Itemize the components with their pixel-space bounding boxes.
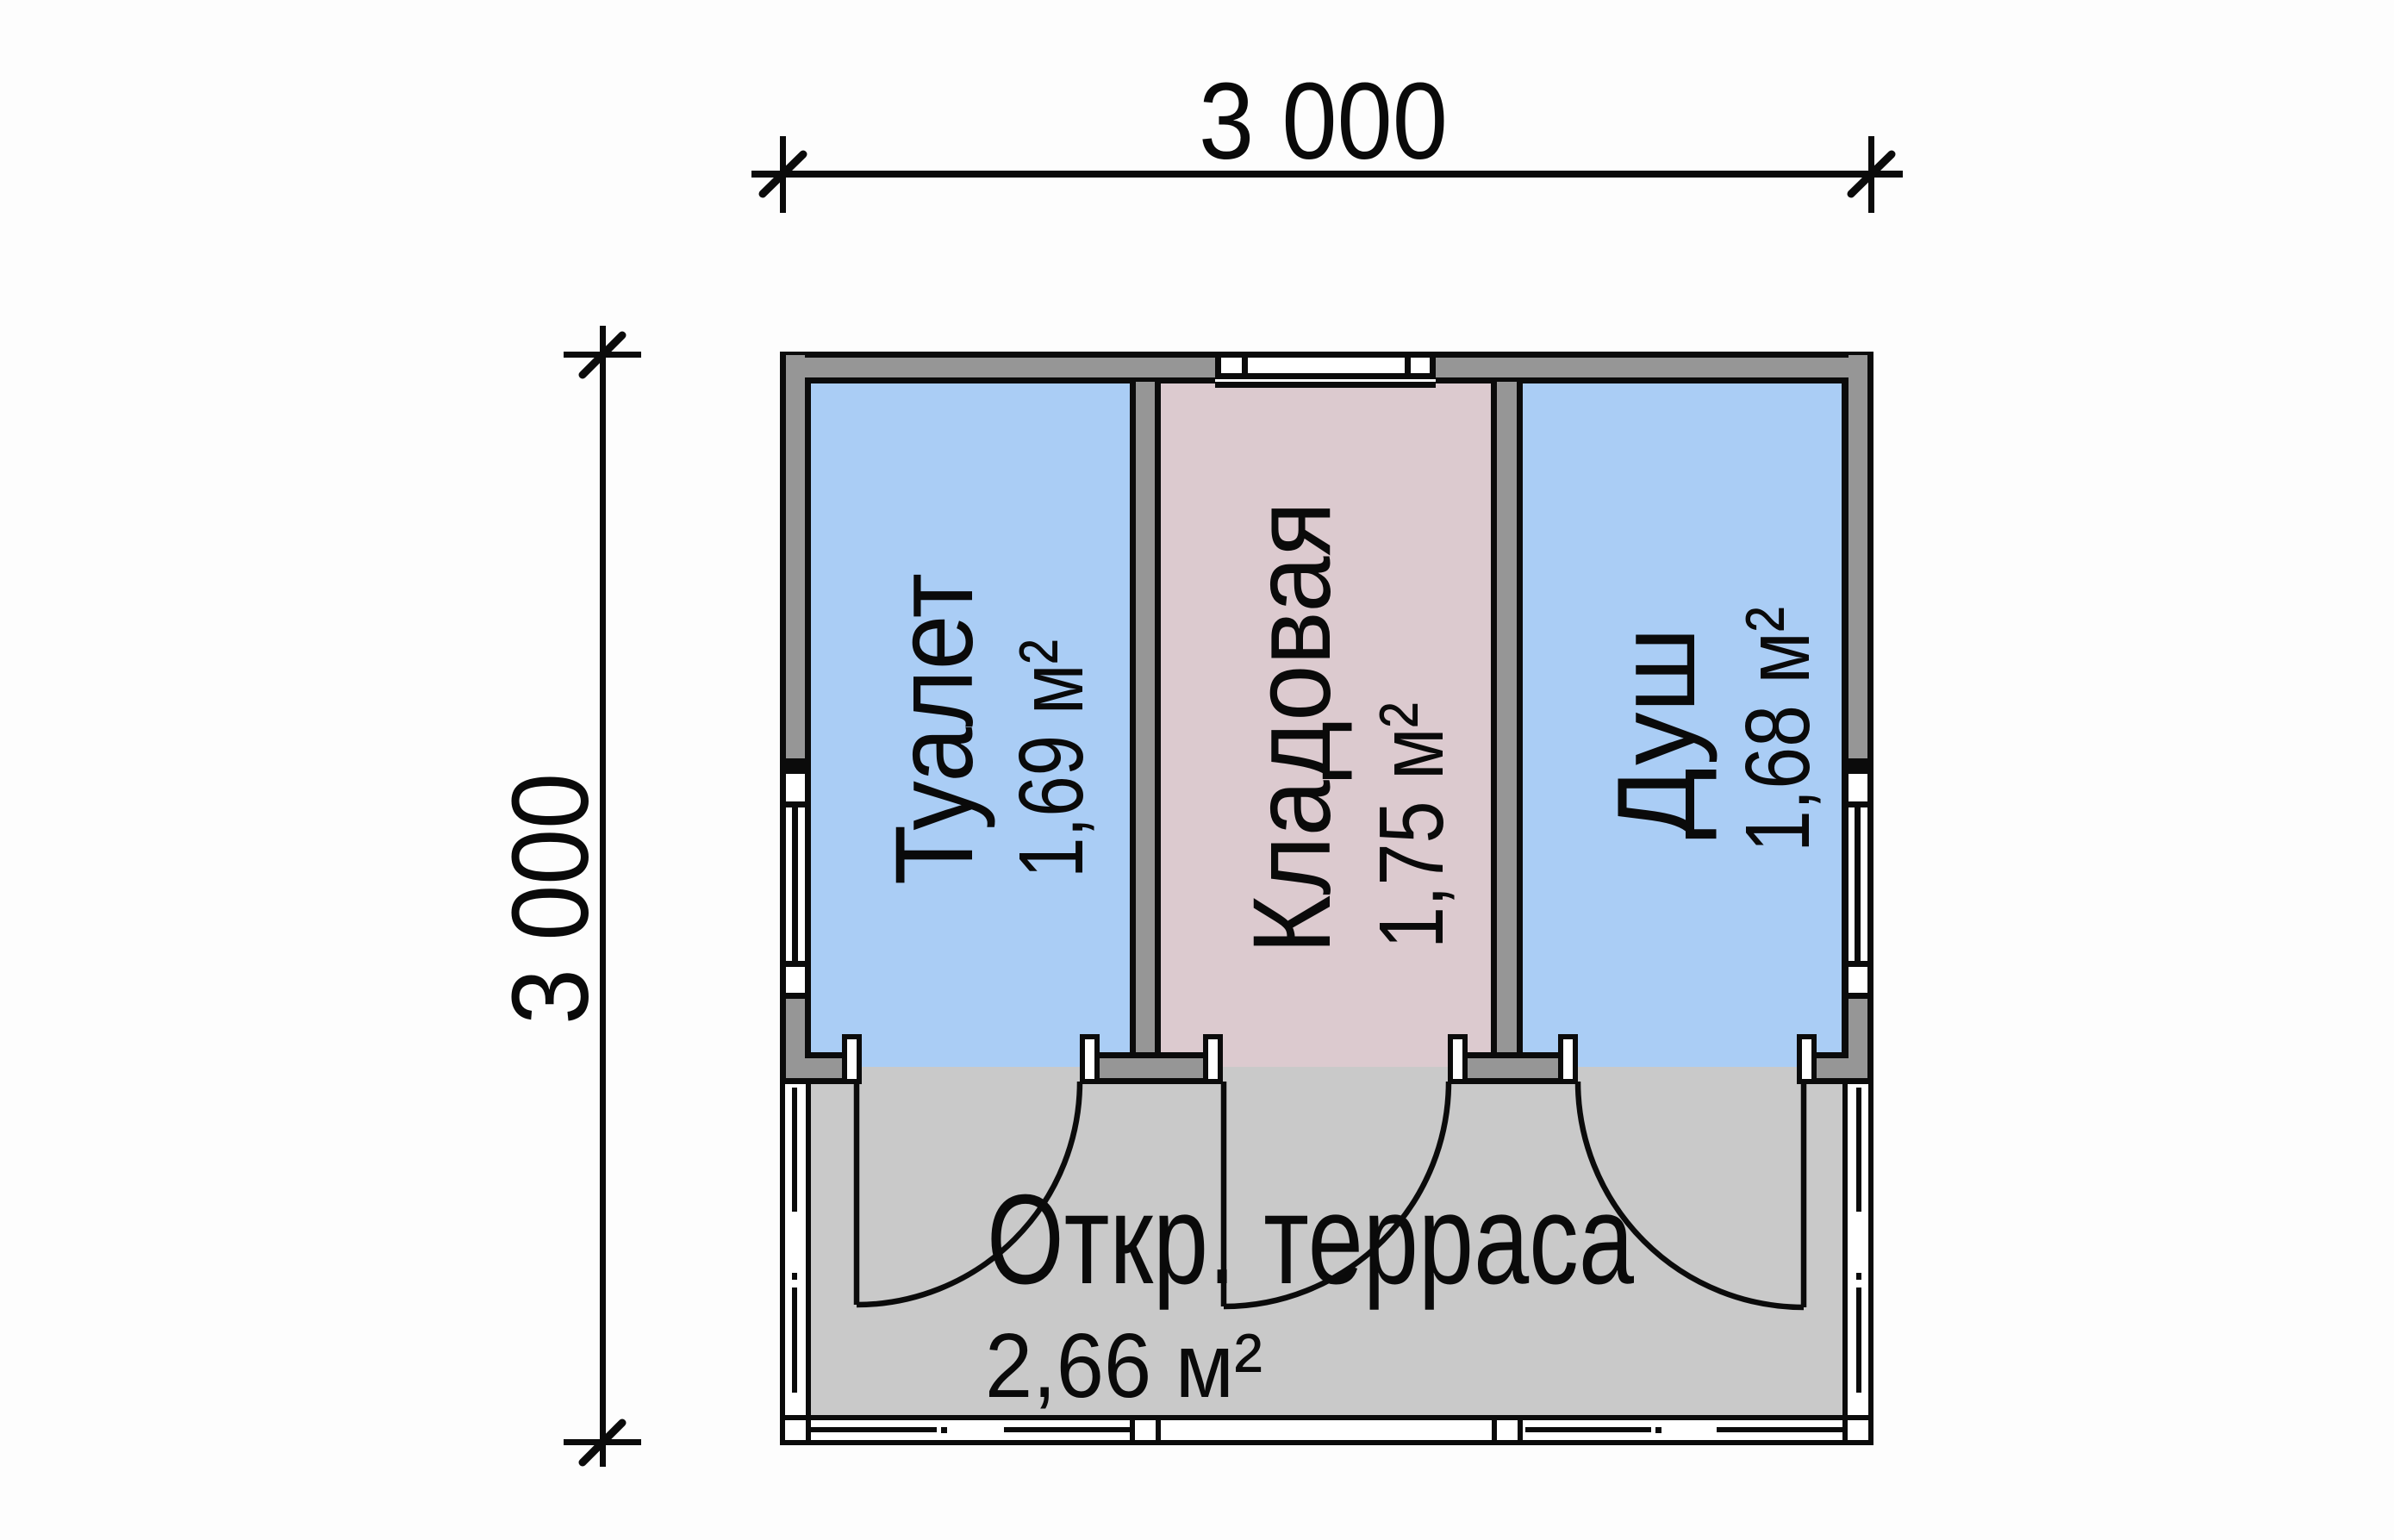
svg-text:Душ: Душ — [1595, 627, 1718, 839]
svg-text:2,66 м²: 2,66 м² — [985, 1315, 1262, 1417]
svg-text:1,75 м²: 1,75 м² — [1361, 702, 1462, 949]
svg-text:Откр. терраса: Откр. терраса — [987, 1169, 1635, 1311]
svg-text:3 000: 3 000 — [1199, 60, 1448, 182]
svg-text:1,68 м²: 1,68 м² — [1727, 607, 1829, 852]
svg-text:1,69 м²: 1,69 м² — [1001, 639, 1102, 878]
svg-text:Кладовая: Кладовая — [1231, 502, 1354, 954]
svg-text:Туалет: Туалет — [873, 573, 996, 885]
svg-text:3 000: 3 000 — [489, 773, 611, 1025]
